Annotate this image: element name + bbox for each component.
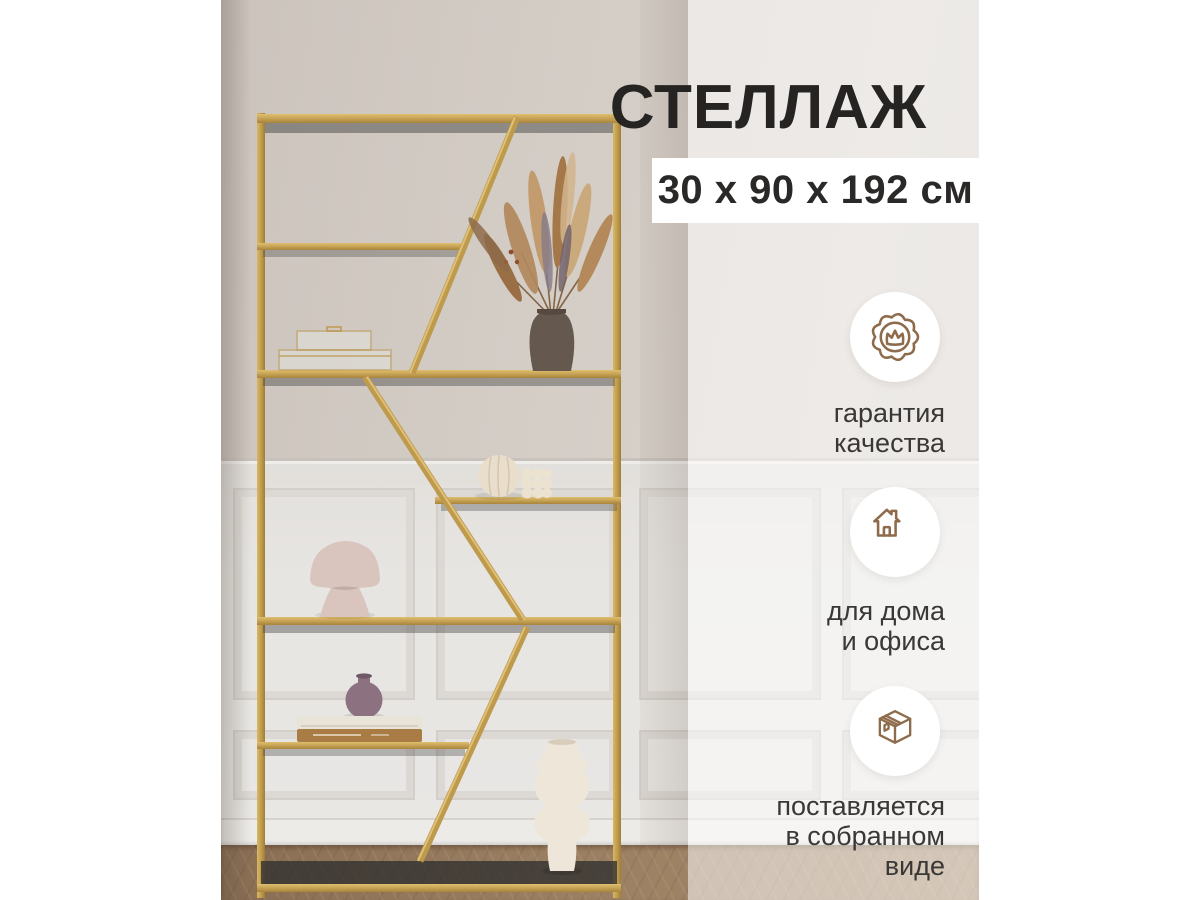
product-title: СТЕЛЛАЖ [610,77,927,139]
dimensions-text: 30 х 90 х 192 см [658,168,974,213]
feature-badge-home [850,487,940,577]
feature-label-line: поставляется [776,791,945,821]
feature-label-line: для дома [827,596,945,626]
home-icon [867,504,923,560]
feature-label-assembled: поставляется в собранном виде [776,791,945,881]
quality-seal-icon [867,309,923,365]
product-card: СТЕЛЛАЖ 30 х 90 х 192 см гарантия качест… [0,0,1200,900]
feature-label-line: качества [834,428,945,458]
feature-label-home: для дома и офиса [827,596,945,656]
feature-label-line: в собранном [776,821,945,851]
curvy-vase-decor [534,739,590,875]
feature-label-line: гарантия [834,398,945,428]
feature-label-line: и офиса [827,626,945,656]
dimensions-badge: 30 х 90 х 192 см [652,158,979,223]
mushroom-vase-decor [310,541,380,619]
feature-badge-quality [850,292,940,382]
feature-label-quality: гарантия качества [834,398,945,458]
package-box-icon [867,703,923,759]
feature-label-line: виде [776,851,945,881]
books-and-vase-decor [297,673,422,742]
glass-box-decor [279,327,391,370]
sphere-and-candle-decor [475,455,552,500]
feature-badge-assembled [850,686,940,776]
